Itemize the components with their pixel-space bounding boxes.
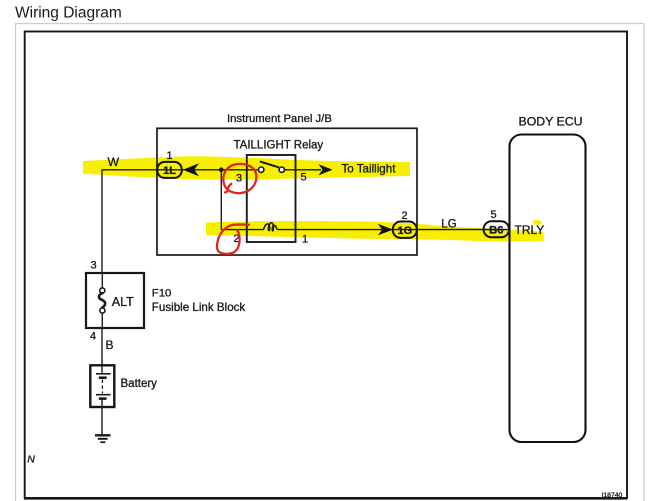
svg-text:Fusible Link Block: Fusible Link Block: [152, 301, 246, 314]
svg-text:TRLY: TRLY: [515, 223, 545, 237]
svg-text:B6: B6: [489, 225, 503, 237]
svg-text:To Taillight: To Taillight: [342, 162, 397, 175]
svg-text:W: W: [108, 155, 120, 169]
svg-text:N: N: [27, 453, 35, 465]
svg-text:1L: 1L: [163, 165, 176, 177]
svg-text:1: 1: [302, 234, 308, 246]
svg-text:I18740: I18740: [602, 492, 623, 499]
svg-text:LG: LG: [441, 219, 456, 231]
svg-text:F10: F10: [152, 288, 171, 300]
svg-text:B: B: [106, 338, 114, 352]
svg-text:3: 3: [236, 173, 242, 185]
svg-text:TAILLIGHT Relay: TAILLIGHT Relay: [234, 140, 324, 152]
svg-text:ALT: ALT: [112, 295, 134, 309]
svg-text:1: 1: [167, 150, 173, 162]
svg-text:Battery: Battery: [121, 378, 158, 390]
svg-text:Instrument Panel J/B: Instrument Panel J/B: [227, 113, 332, 125]
svg-text:4: 4: [90, 331, 96, 343]
svg-text:2: 2: [402, 210, 408, 222]
svg-text:Wiring Diagram: Wiring Diagram: [15, 5, 122, 22]
svg-text:5: 5: [301, 172, 307, 184]
svg-text:BODY ECU: BODY ECU: [519, 115, 583, 129]
svg-text:5: 5: [491, 209, 497, 221]
svg-text:1G: 1G: [397, 225, 412, 237]
svg-text:3: 3: [91, 260, 97, 272]
